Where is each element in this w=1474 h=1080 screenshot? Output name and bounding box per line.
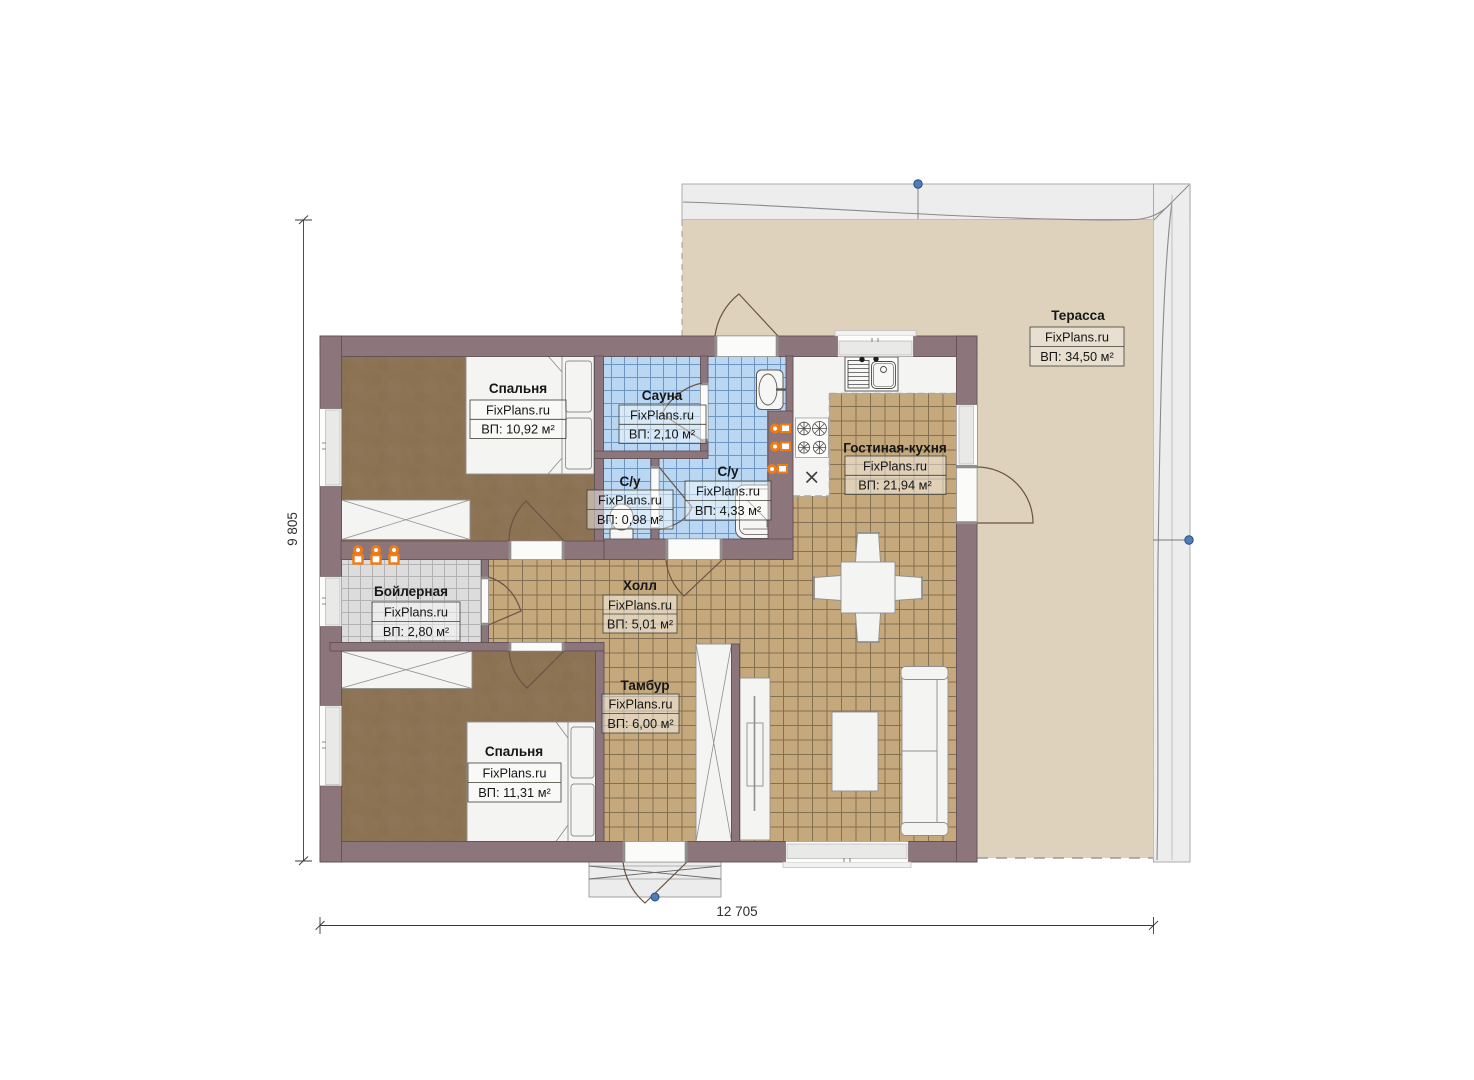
svg-text:ВП: 6,00 м²: ВП: 6,00 м² — [607, 716, 674, 731]
svg-text:Терасса: Терасса — [1051, 308, 1105, 323]
svg-text:ВП: 21,94 м²: ВП: 21,94 м² — [858, 478, 932, 493]
svg-text:Спальня: Спальня — [489, 381, 547, 396]
svg-text:Холл: Холл — [623, 578, 657, 593]
svg-text:ВП: 34,50 м²: ВП: 34,50 м² — [1040, 349, 1114, 364]
svg-text:Бойлерная: Бойлерная — [374, 584, 448, 599]
svg-text:12 705: 12 705 — [716, 904, 757, 919]
svg-text:ВП: 0,98 м²: ВП: 0,98 м² — [597, 512, 664, 527]
svg-text:Сауна: Сауна — [642, 388, 683, 403]
svg-text:С/у: С/у — [717, 464, 739, 479]
svg-text:FixPlans.ru: FixPlans.ru — [384, 605, 448, 620]
svg-text:Спальня: Спальня — [485, 744, 543, 759]
svg-text:FixPlans.ru: FixPlans.ru — [863, 459, 927, 474]
svg-text:FixPlans.ru: FixPlans.ru — [1045, 330, 1109, 345]
svg-text:ВП: 11,31 м²: ВП: 11,31 м² — [478, 785, 551, 800]
svg-text:FixPlans.ru: FixPlans.ru — [608, 697, 672, 712]
svg-text:FixPlans.ru: FixPlans.ru — [482, 766, 546, 781]
svg-text:ВП: 2,80 м²: ВП: 2,80 м² — [383, 624, 450, 639]
svg-text:FixPlans.ru: FixPlans.ru — [630, 408, 694, 423]
svg-text:Тамбур: Тамбур — [621, 678, 670, 693]
svg-text:ВП: 10,92 м²: ВП: 10,92 м² — [481, 422, 555, 437]
svg-text:Гостиная-кухня: Гостиная-кухня — [843, 441, 946, 456]
svg-text:ВП: 5,01 м²: ВП: 5,01 м² — [607, 617, 674, 632]
svg-text:С/у: С/у — [619, 474, 641, 489]
svg-text:FixPlans.ru: FixPlans.ru — [696, 484, 760, 499]
svg-text:9 805: 9 805 — [285, 512, 300, 546]
svg-text:ВП: 2,10 м²: ВП: 2,10 м² — [629, 427, 696, 442]
svg-text:FixPlans.ru: FixPlans.ru — [608, 598, 672, 613]
svg-text:ВП: 4,33 м²: ВП: 4,33 м² — [695, 503, 762, 518]
svg-text:FixPlans.ru: FixPlans.ru — [598, 493, 662, 508]
svg-text:FixPlans.ru: FixPlans.ru — [486, 403, 550, 418]
